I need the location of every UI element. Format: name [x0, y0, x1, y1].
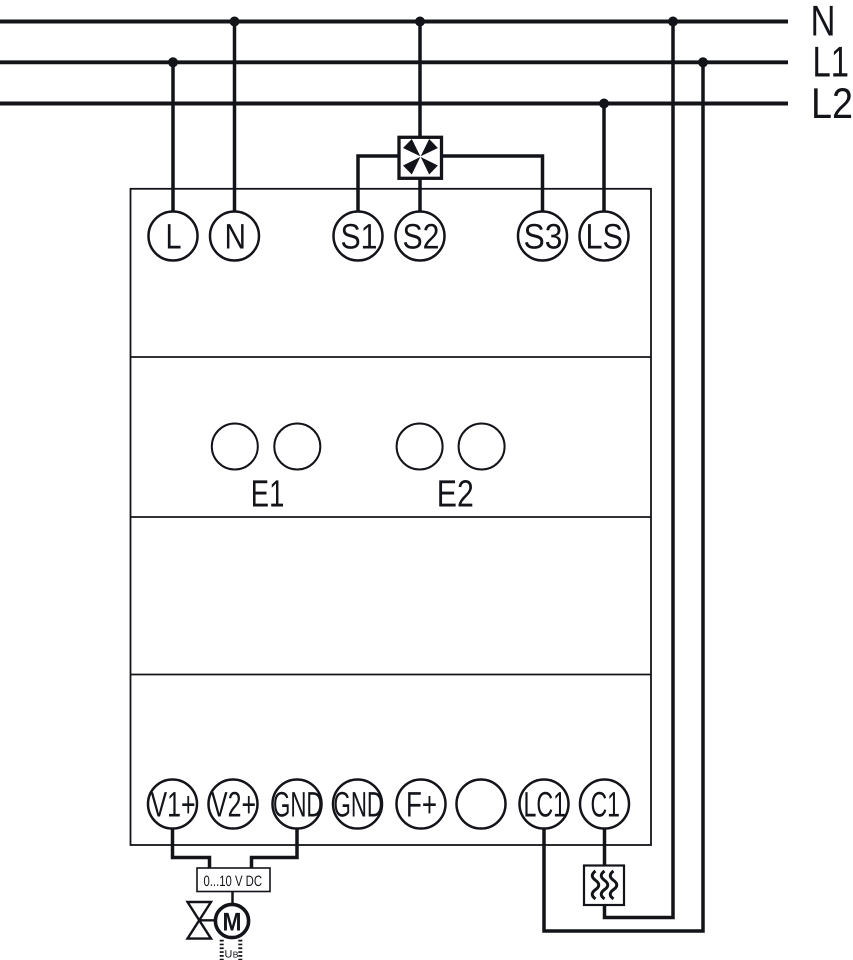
svg-text:F+: F+ — [406, 785, 437, 825]
svg-text:N: N — [225, 217, 247, 257]
svg-text:L2: L2 — [811, 80, 853, 128]
svg-text:S3: S3 — [524, 217, 563, 257]
svg-text:V2+: V2+ — [211, 785, 256, 825]
svg-text:M: M — [223, 908, 242, 936]
svg-text:V1+: V1+ — [151, 785, 196, 825]
svg-text:S1: S1 — [341, 217, 378, 257]
svg-text:C1: C1 — [591, 785, 621, 825]
svg-text:E1: E1 — [251, 474, 284, 516]
svg-text:0...10 V DC: 0...10 V DC — [204, 873, 263, 890]
svg-text:E2: E2 — [437, 474, 474, 516]
svg-text:S2: S2 — [403, 217, 440, 257]
svg-text:B: B — [233, 950, 239, 960]
svg-text:L: L — [166, 217, 182, 257]
svg-text:GND: GND — [273, 785, 323, 825]
svg-text:U: U — [225, 948, 233, 960]
svg-text:LS: LS — [586, 217, 624, 257]
svg-text:GND: GND — [334, 785, 384, 825]
svg-text:LC1: LC1 — [524, 785, 567, 825]
